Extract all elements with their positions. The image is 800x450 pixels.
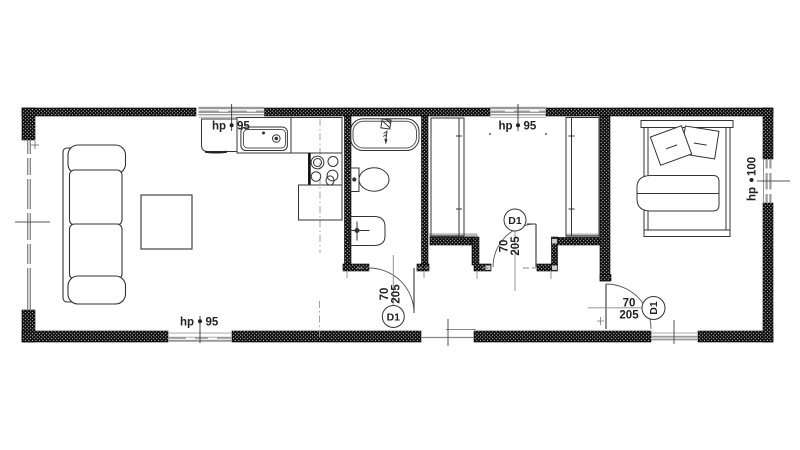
svg-text:hp: hp — [499, 121, 513, 133]
svg-text:95: 95 — [206, 317, 219, 329]
svg-text:70: 70 — [379, 288, 391, 301]
svg-text:70: 70 — [499, 240, 511, 253]
svg-text:205: 205 — [619, 310, 639, 322]
svg-text:95: 95 — [524, 121, 537, 133]
svg-text:D1: D1 — [387, 312, 401, 324]
svg-text:70: 70 — [623, 298, 636, 310]
svg-text:hp: hp — [747, 187, 759, 201]
svg-text:205: 205 — [391, 284, 403, 304]
svg-text:hp: hp — [212, 121, 226, 133]
svg-text:D1: D1 — [508, 215, 522, 227]
svg-text:100: 100 — [747, 157, 759, 176]
svg-text:D1: D1 — [648, 301, 660, 315]
svg-text:205: 205 — [510, 236, 522, 256]
svg-text:hp: hp — [180, 317, 194, 329]
